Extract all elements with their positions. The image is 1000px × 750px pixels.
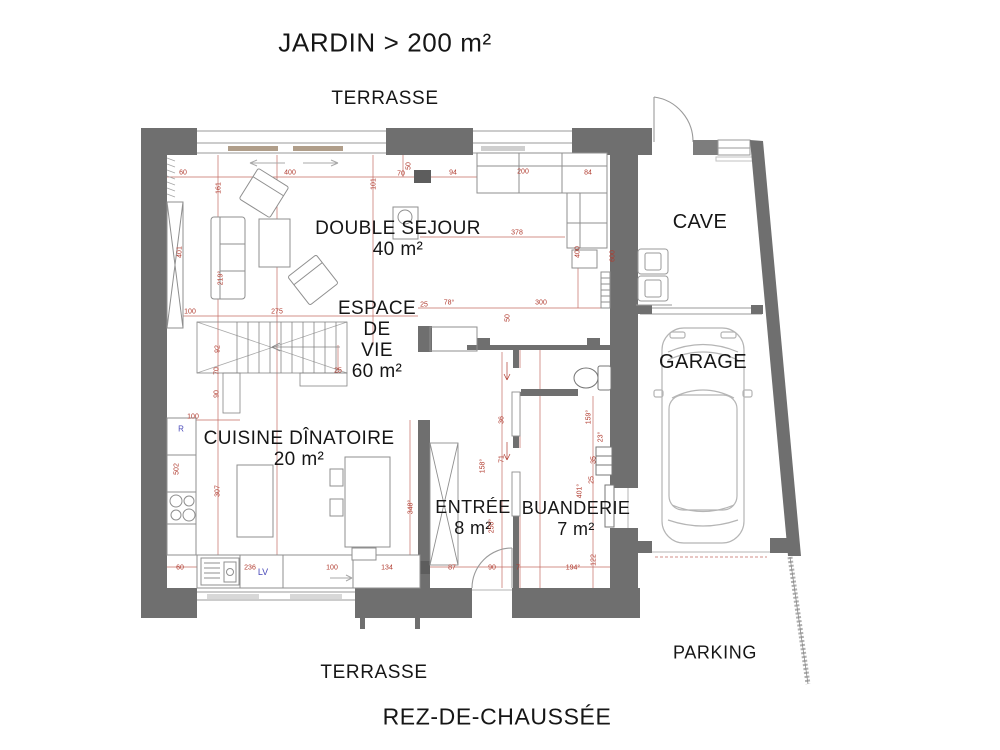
dimension-label: 134 [381, 565, 393, 572]
room-label-garage: GARAGE [659, 351, 747, 373]
dimension-label: 122 [591, 554, 598, 566]
dimension-label: 94 [449, 170, 457, 177]
dimension-label: 78° [444, 300, 455, 307]
dimension-label: 60 [176, 565, 184, 572]
room-label-double-sejour: DOUBLE SEJOUR40 m² [315, 218, 481, 260]
dimension-label: 236 [244, 565, 256, 572]
dimension-label: 194° [566, 565, 580, 572]
dimension-label: 100 [187, 414, 199, 421]
room-label-cuisine-dinatoire: CUISINE DÎNATOIRE20 m² [204, 428, 395, 470]
dimension-label: 158° [480, 459, 487, 473]
appliance-note-r: R [178, 425, 184, 434]
room-label-cave: CAVE [673, 211, 728, 233]
dimension-label: 600 [610, 250, 617, 262]
dimension-label: 250° [489, 519, 496, 533]
dimension-label: 84 [584, 170, 592, 177]
floor-plan-canvas: JARDIN > 200 m² TERRASSE TERRASSE PARKIN… [0, 0, 1000, 750]
dimension-label: 60 [179, 170, 187, 177]
dimension-label: 401° [577, 484, 584, 498]
dimension-label: 400 [284, 170, 296, 177]
dimension-label: 161 [216, 182, 223, 194]
dimension-label: 300 [535, 300, 547, 307]
room-label-entree: ENTRÉE8 m² [435, 497, 510, 539]
dimension-label: 71 [499, 455, 506, 463]
terrasse-bottom-label: TERRASSE [320, 662, 427, 684]
room-label-buanderie: BUANDERIE7 m² [522, 498, 631, 540]
dimension-label: 70 [214, 367, 221, 375]
dimension-label: 25 [589, 476, 596, 484]
dimension-label: 275 [271, 309, 283, 316]
dimension-label: 50 [505, 314, 512, 322]
terrasse-top-label: TERRASSE [331, 88, 438, 110]
dimension-label: 159° [586, 410, 593, 424]
cave-appliances [636, 249, 672, 305]
dimension-label: 502 [174, 463, 181, 475]
dimension-label: 35 [591, 456, 598, 464]
dimension-label: 400 [575, 246, 582, 258]
dimension-label: 401 [177, 246, 184, 258]
dimension-label: 90 [214, 390, 221, 398]
dimension-label: 7 [516, 565, 520, 572]
dimension-label: 307 [215, 485, 222, 497]
parking-label: PARKING [673, 643, 757, 664]
dimension-label: 101 [371, 178, 378, 190]
dimension-label: 90 [488, 565, 496, 572]
dimension-label: 25 [420, 302, 428, 309]
dimension-label: 25 [334, 368, 342, 375]
annex-walls [628, 140, 801, 556]
dimension-label: 92 [215, 345, 222, 353]
dimension-label: 36 [499, 416, 506, 424]
dimension-label: 378 [511, 230, 523, 237]
floor-title: REZ-DE-CHAUSSÉE [383, 704, 612, 731]
fence [790, 557, 808, 684]
dimension-label: 50 [406, 162, 413, 170]
dimension-label: 87 [448, 565, 456, 572]
dimension-label: 219° [218, 271, 225, 285]
dimension-label: 100 [326, 565, 338, 572]
room-label-espace-de-vie: ESPACEDEVIE60 m² [338, 298, 416, 382]
dimension-label: 348° [408, 500, 415, 514]
floor-plan-drawing [0, 0, 1000, 750]
jardin-label: JARDIN > 200 m² [278, 28, 491, 59]
dimension-label: 100 [184, 309, 196, 316]
dimension-label: 70 [397, 171, 405, 178]
dining-set [330, 457, 390, 560]
dimension-label: 23° [598, 432, 605, 443]
appliance-note-lv: LV [258, 567, 268, 577]
dimension-label: 200 [517, 169, 529, 176]
toilet-icon [574, 366, 611, 390]
